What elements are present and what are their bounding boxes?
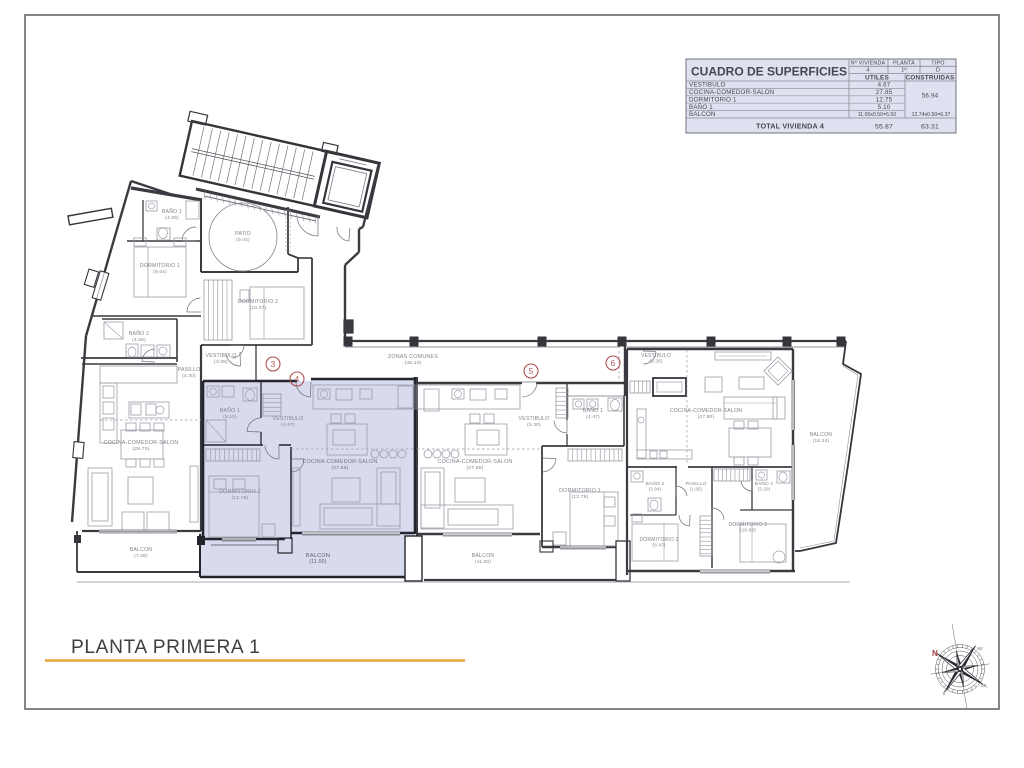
svg-text:COCINA-COMEDOR-SALON: COCINA-COMEDOR-SALON (670, 408, 742, 414)
svg-text:(16.24): (16.24) (813, 438, 830, 444)
svg-text:ZONAS COMUNES: ZONAS COMUNES (388, 354, 438, 360)
svg-text:63.31: 63.31 (921, 124, 939, 131)
svg-text:5: 5 (529, 367, 534, 376)
svg-text:BAÑO 1: BAÑO 1 (689, 104, 713, 111)
svg-text:PASILLO: PASILLO (178, 367, 201, 373)
svg-text:BALCON: BALCON (689, 111, 716, 118)
svg-text:COCINA-COMEDOR-SALON: COCINA-COMEDOR-SALON (303, 459, 378, 465)
svg-text:PLANTA: PLANTA (893, 60, 915, 66)
svg-text:BALCON: BALCON (810, 432, 833, 438)
svg-text:12.75: 12.75 (876, 96, 893, 103)
svg-text:(4.30): (4.30) (182, 373, 196, 379)
svg-text:VESTIBULO: VESTIBULO (273, 416, 304, 422)
svg-text:VESTIBULO: VESTIBULO (206, 353, 237, 359)
svg-text:(10.63): (10.63) (740, 528, 756, 533)
svg-text:(1.85): (1.85) (690, 486, 703, 491)
svg-text:COCINA-COMEDOR-SALON: COCINA-COMEDOR-SALON (438, 459, 513, 465)
svg-text:3: 3 (271, 360, 276, 369)
svg-text:(5.30): (5.30) (527, 422, 541, 428)
svg-text:PLANTA PRIMERA 1: PLANTA PRIMERA 1 (71, 637, 260, 658)
svg-text:4: 4 (295, 375, 300, 384)
svg-text:(12.75): (12.75) (231, 495, 248, 501)
svg-text:BALCON: BALCON (306, 553, 330, 559)
svg-text:(9.64): (9.64) (153, 269, 167, 275)
svg-text:6: 6 (611, 359, 616, 368)
svg-text:BALCON: BALCON (130, 547, 153, 553)
svg-text:BALCON: BALCON (472, 553, 495, 559)
svg-text:(3.08): (3.08) (214, 359, 228, 365)
svg-text:(3.94): (3.94) (649, 486, 662, 491)
svg-text:(4.50): (4.50) (132, 337, 146, 343)
svg-text:TIPO: TIPO (931, 60, 944, 66)
svg-text:(10.07): (10.07) (250, 305, 267, 311)
svg-text:COCINA-COMEDOR-SALON: COCINA-COMEDOR-SALON (689, 89, 774, 96)
svg-text:DORMITORIO 2: DORMITORIO 2 (238, 299, 278, 305)
svg-text:COCINA-COMEDOR-SALON: COCINA-COMEDOR-SALON (104, 440, 179, 446)
svg-text:(4.47): (4.47) (586, 414, 600, 420)
svg-text:27.85: 27.85 (876, 89, 893, 96)
svg-text:(27.85): (27.85) (466, 465, 483, 471)
svg-text:(12.75): (12.75) (571, 494, 588, 500)
svg-text:VESTIBULO: VESTIBULO (689, 82, 726, 89)
svg-text:(3.20): (3.20) (758, 486, 771, 491)
svg-text:(4.67): (4.67) (281, 422, 295, 428)
svg-text:S: S (943, 691, 946, 696)
svg-text:(9.04): (9.04) (236, 237, 250, 243)
svg-text:(8.47): (8.47) (652, 543, 665, 548)
svg-text:BAÑO 1: BAÑO 1 (583, 407, 603, 414)
svg-text:DORMITORIO 1: DORMITORIO 1 (219, 489, 261, 495)
svg-text:VESTIBULO: VESTIBULO (519, 416, 550, 422)
svg-text:BAÑO 2: BAÑO 2 (129, 330, 149, 337)
svg-text:(7.08): (7.08) (134, 553, 148, 559)
svg-text:1º: 1º (901, 67, 907, 74)
svg-text:(11.00): (11.00) (309, 559, 326, 565)
svg-text:(28.70): (28.70) (132, 446, 149, 452)
svg-text:55.87: 55.87 (875, 124, 893, 131)
svg-text:(27.80): (27.80) (698, 414, 715, 420)
svg-text:SE: SE (981, 683, 987, 688)
svg-text:(11.00): (11.00) (475, 559, 491, 565)
svg-text:BAÑO 1: BAÑO 1 (220, 407, 240, 414)
svg-text:D: D (936, 68, 940, 74)
svg-text:(3.36): (3.36) (649, 359, 662, 364)
svg-text:(27.85): (27.85) (331, 465, 348, 471)
svg-text:(5.10): (5.10) (223, 414, 237, 420)
svg-text:DORMITORIO 1: DORMITORIO 1 (689, 96, 737, 103)
svg-text:DORMITORIO 1: DORMITORIO 1 (140, 263, 180, 269)
svg-text:Nº VIVIENDA: Nº VIVIENDA (851, 60, 886, 66)
svg-text:(4.08): (4.08) (165, 215, 179, 221)
svg-text:N: N (932, 649, 938, 658)
svg-text:CONSTRUIDAS: CONSTRUIDAS (905, 74, 955, 81)
svg-text:5.10: 5.10 (878, 104, 891, 111)
svg-text:CUADRO DE SUPERFICIES: CUADRO DE SUPERFICIES (691, 65, 847, 79)
svg-text:BAÑO 1: BAÑO 1 (162, 208, 182, 215)
svg-text:NE: NE (977, 646, 983, 651)
svg-text:11.00x0.50=5.50: 11.00x0.50=5.50 (858, 112, 897, 118)
svg-text:DORMITORIO 1: DORMITORIO 1 (559, 488, 601, 494)
svg-text:12.74x0.50=6.37: 12.74x0.50=6.37 (912, 112, 951, 118)
svg-text:56.94: 56.94 (922, 93, 939, 100)
svg-text:4: 4 (866, 68, 869, 74)
svg-text:UTILES: UTILES (865, 74, 889, 81)
svg-text:TOTAL VIVIENDA 4: TOTAL VIVIENDA 4 (756, 122, 824, 131)
svg-text:(45.10): (45.10) (404, 360, 421, 366)
svg-text:4.67: 4.67 (878, 82, 891, 89)
svg-text:PATIO: PATIO (235, 231, 251, 237)
